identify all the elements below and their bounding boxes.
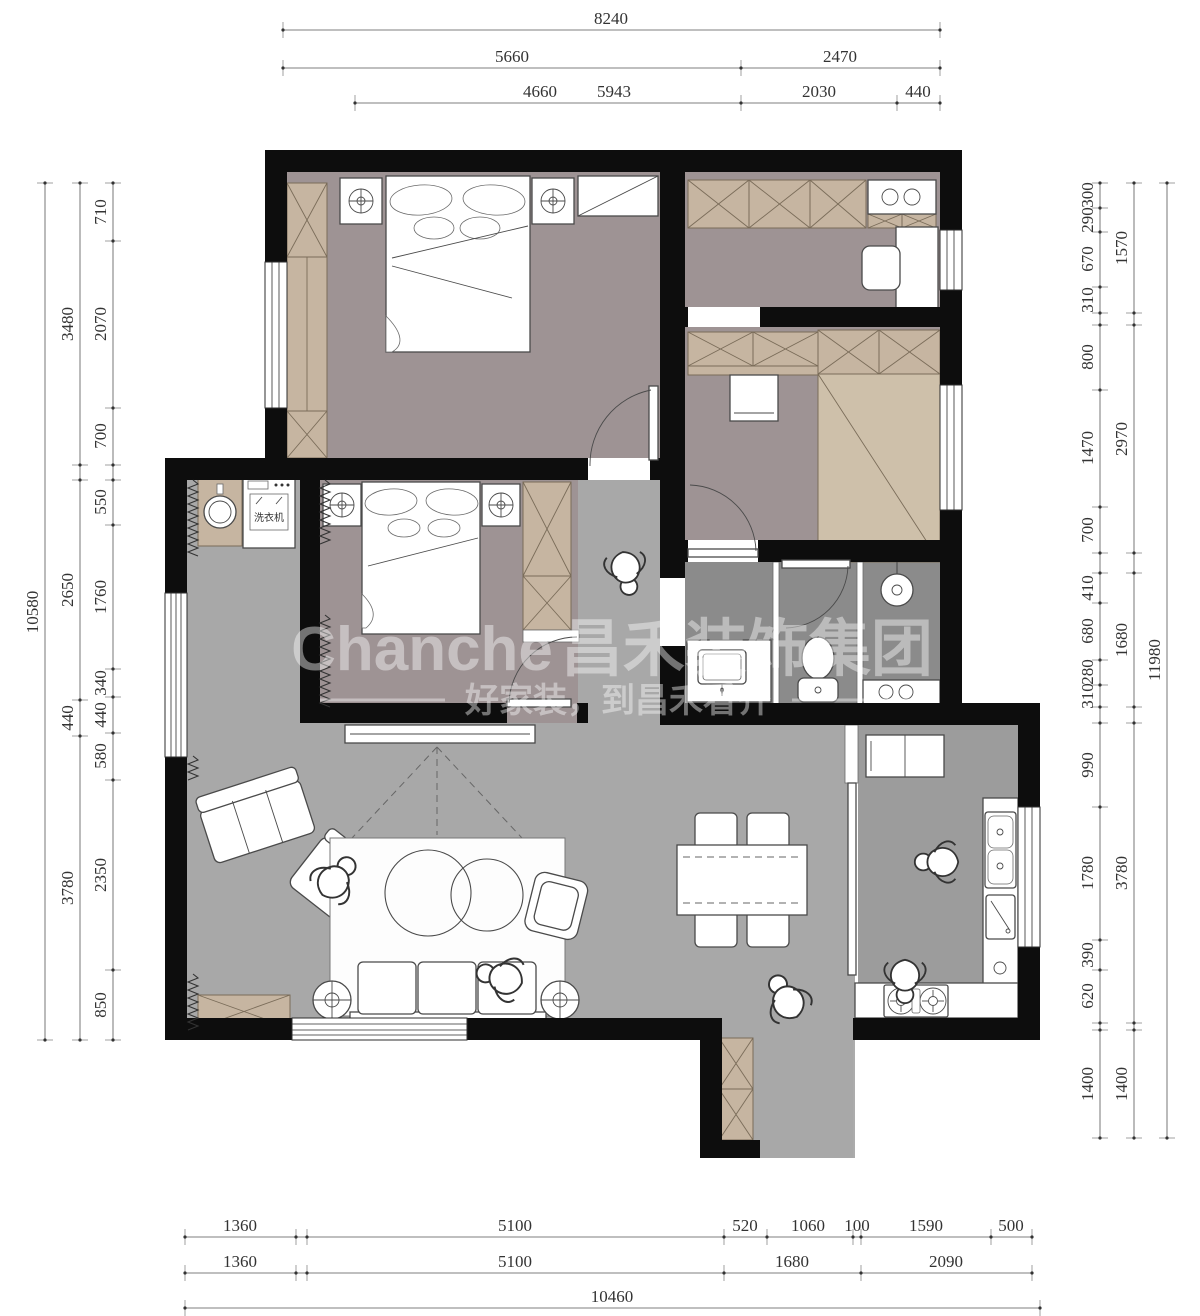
dim-label: 2970	[1112, 422, 1131, 456]
lamp-icon	[349, 189, 373, 213]
dim-label: 2350	[91, 858, 110, 892]
desk-chair	[862, 246, 900, 290]
watermark-brand-latin: Chanche	[291, 615, 553, 684]
dim-label: 440	[91, 702, 110, 728]
dim-label: 280	[1078, 659, 1097, 685]
dim-label: 440	[58, 705, 77, 731]
dim-label: 1680	[775, 1252, 809, 1271]
dim-chain: 3002906703108001470700410680280310990178…	[1078, 181, 1108, 1139]
dim-label: 500	[998, 1216, 1024, 1235]
window	[292, 1018, 467, 1040]
dim-label: 2090	[929, 1252, 963, 1271]
master-bed	[386, 176, 530, 352]
window	[265, 262, 287, 408]
dim-label: 1570	[1112, 231, 1131, 265]
sliding-door	[848, 783, 856, 975]
dim-label: 700	[91, 423, 110, 449]
kids-desk	[730, 375, 778, 421]
dim-label: 5100	[498, 1252, 532, 1271]
dim-label: 100	[844, 1216, 870, 1235]
dim-label: 340	[91, 670, 110, 696]
dim-chain: 348026504403780	[58, 181, 88, 1041]
dim-label: 2030	[802, 82, 836, 101]
dim-label: 2650	[58, 573, 77, 607]
dim-label: 620	[1078, 983, 1097, 1009]
dim-label: 300	[1078, 182, 1097, 208]
dim-label: 850	[91, 992, 110, 1018]
kitchen-door-jamb	[845, 725, 858, 783]
dim-chain: 8240	[281, 9, 941, 38]
dim-label: 5660	[495, 47, 529, 66]
study-opening	[688, 307, 760, 327]
dim-chain: 56602470	[281, 47, 941, 76]
window	[940, 385, 962, 510]
dim-label: 410	[1078, 575, 1097, 601]
kids-shelf	[688, 366, 818, 375]
master-door-opening	[588, 458, 650, 480]
dim-label: 4660	[523, 82, 557, 101]
dim-chain: 1360510016802090	[183, 1252, 1033, 1281]
dim-label: 2470	[823, 47, 857, 66]
dim-label: 2070	[91, 307, 110, 341]
watermark-slogan: 好家装，到昌禾看齐	[464, 682, 771, 720]
dim-label: 1400	[1112, 1067, 1131, 1101]
dim-chain: 1360510052010601001590500	[183, 1216, 1033, 1245]
kitchen-sink	[985, 812, 1016, 888]
bedroom2-bed	[362, 482, 480, 634]
dim-chain: 15702970168037801400	[1112, 181, 1142, 1139]
dim-label: 290	[1078, 207, 1097, 233]
dim-label: 520	[732, 1216, 758, 1235]
dim-label: 710	[91, 199, 110, 225]
dim-chain: 11980	[1145, 181, 1175, 1139]
dim-label: 1780	[1078, 856, 1097, 890]
dim-label: 1400	[1078, 1067, 1097, 1101]
dim-chain: 10460	[183, 1287, 1041, 1316]
dim-label: 1360	[223, 1216, 257, 1235]
dim-chain: 10580	[23, 181, 53, 1041]
dim-label: 3480	[58, 307, 77, 341]
side-table	[313, 981, 351, 1019]
lamp-icon	[541, 189, 565, 213]
gas-stove	[884, 985, 948, 1017]
lamp-icon	[330, 493, 354, 517]
side-table	[541, 981, 579, 1019]
window	[940, 230, 962, 290]
dim-label: 700	[1078, 517, 1097, 543]
upper-cabinet	[868, 180, 936, 214]
dim-label: 1470	[1078, 431, 1097, 465]
cutting-board	[986, 895, 1015, 939]
dining-table	[677, 845, 807, 915]
dim-chain: 466059432030440	[353, 82, 941, 111]
washing-machine-label: 洗衣机	[254, 511, 284, 524]
dim-label: 10460	[591, 1287, 634, 1306]
dim-label: 10580	[23, 591, 42, 634]
dim-label: 5100	[498, 1216, 532, 1235]
watermark-brand: Chanche昌禾装饰集团	[291, 615, 933, 684]
floor-plan: 洗衣机	[0, 0, 1200, 1316]
dim-label: 800	[1078, 344, 1097, 370]
fridge	[866, 735, 944, 777]
dim-label: 440	[905, 82, 931, 101]
dim-chain: 710207070055017603404405802350850	[91, 181, 121, 1041]
dim-label: 1060	[791, 1216, 825, 1235]
washing-machine: 洗衣机	[243, 476, 295, 548]
dim-label: 3780	[1112, 856, 1131, 890]
watermark-brand-cn: 昌禾装饰集团	[561, 615, 933, 684]
dim-label: 680	[1078, 618, 1097, 644]
dim-label: 8240	[594, 9, 628, 28]
dim-label: 550	[91, 489, 110, 515]
dim-label: 1760	[91, 580, 110, 614]
lamp-icon	[489, 493, 513, 517]
dim-label: 580	[91, 743, 110, 769]
dim-label: 310	[1078, 287, 1097, 313]
desk	[896, 227, 938, 309]
dim-label: 5943	[597, 82, 631, 101]
dim-label: 1680	[1112, 623, 1131, 657]
dim-label: 390	[1078, 942, 1097, 968]
dim-label: 3780	[58, 871, 77, 905]
dim-label: 11980	[1145, 639, 1164, 681]
window	[1018, 807, 1040, 947]
dim-label: 310	[1078, 683, 1097, 709]
dim-label: 1590	[909, 1216, 943, 1235]
window	[165, 593, 187, 757]
dim-label: 990	[1078, 752, 1097, 778]
dim-label: 1360	[223, 1252, 257, 1271]
dim-label: 670	[1078, 246, 1097, 272]
